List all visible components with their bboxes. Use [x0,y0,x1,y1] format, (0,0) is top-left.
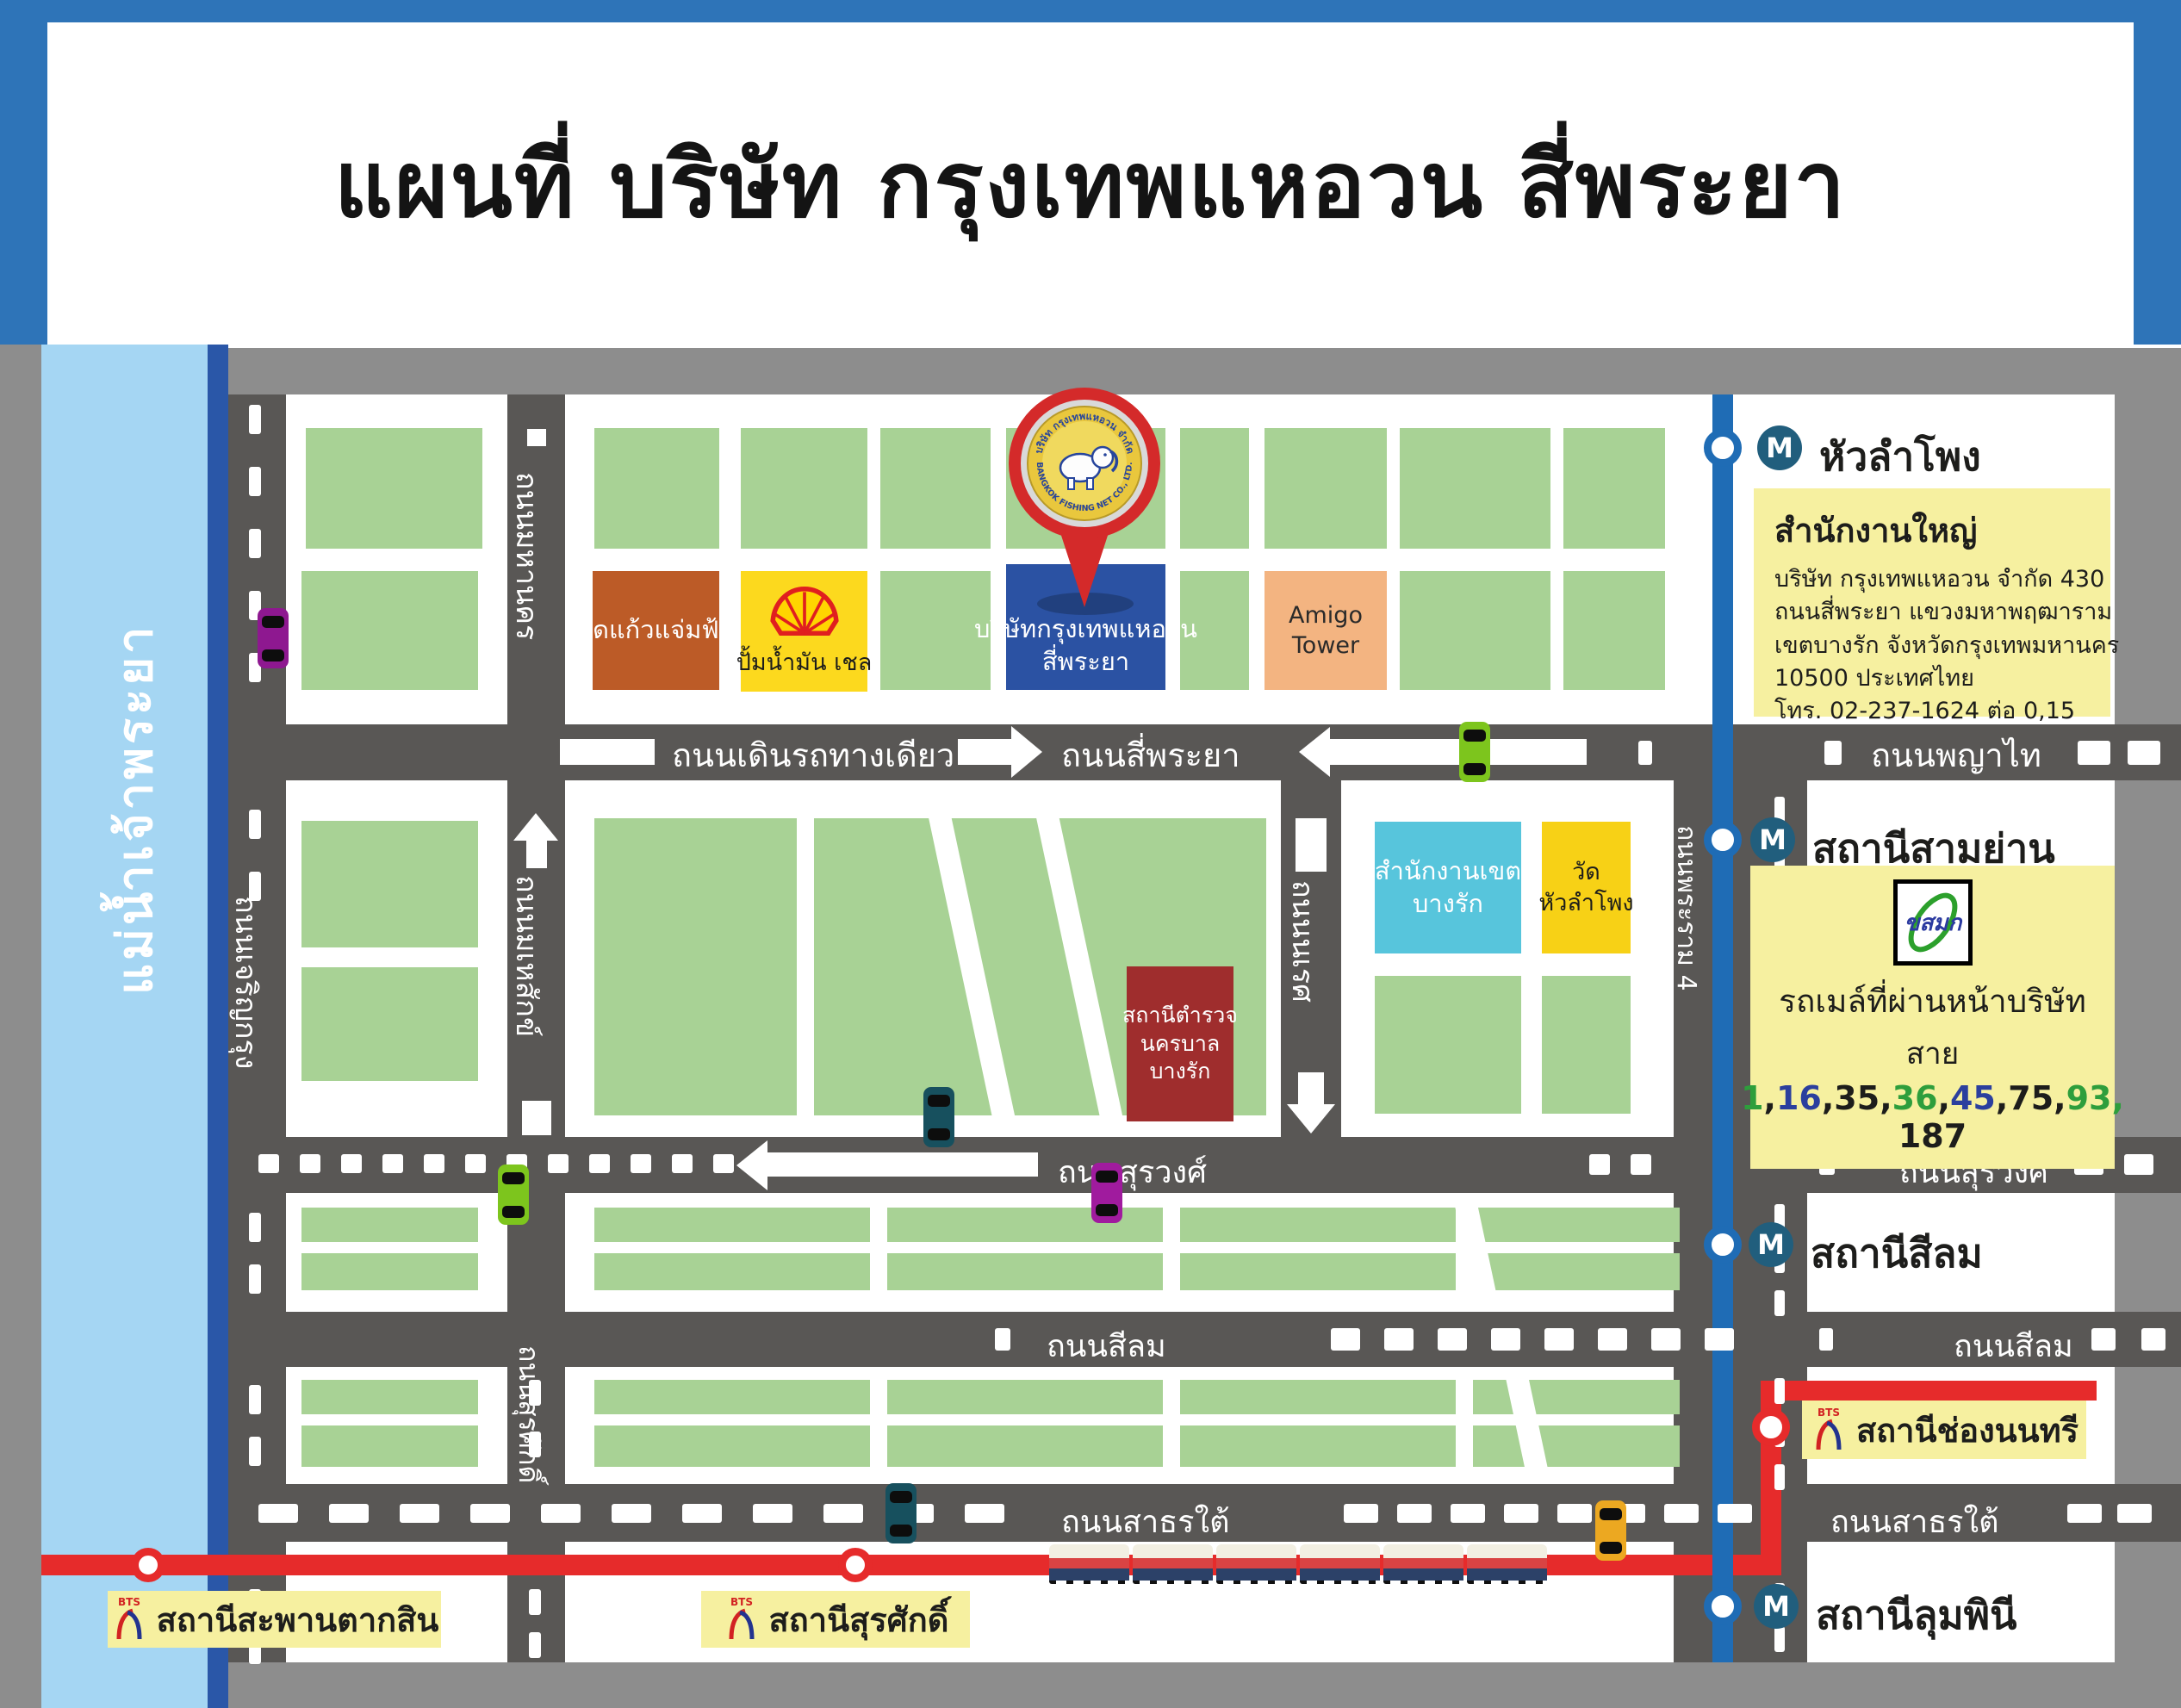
road-dash [249,1264,261,1294]
city-block [594,428,719,549]
city-block [741,428,867,549]
arrow-right-icon [958,739,1011,765]
arrow-down-icon [1287,1104,1335,1133]
city-block [1180,1253,1456,1290]
road-bar [1296,818,1327,872]
city-block [1180,428,1249,549]
train-car [1049,1544,1129,1584]
city-block [301,821,478,947]
building-label: สถานีตำรวจ [1122,1002,1238,1030]
road-dash [1651,1328,1681,1351]
road-label-one-way: ถนนเดินรถทางเดียว [672,729,954,781]
city-block [301,1253,478,1290]
bus-box-heading: รถเมล์ที่ผ่านหน้าบริษัท [1779,976,2086,1027]
road-label-silom-east: ถนนสีลม [1954,1321,2073,1370]
road-dash [631,1154,651,1173]
road-dash [823,1504,863,1523]
road-dash [529,1589,541,1615]
map-border-left [0,345,41,1708]
road-dash [548,1154,569,1173]
road-dash [300,1154,320,1173]
bus-route-numbers: 1,16,35,36,45,75,93, [1741,1079,2124,1117]
road-label-rama4: ถนนพระราม 4 [1666,825,1706,991]
bts-label-taksin: BTS สถานีสะพานตากสิน [108,1591,441,1648]
building-label: บริษัทกรุงเทพแหอวน [974,613,1197,646]
road-dash [1718,1504,1752,1523]
road-dash [465,1154,486,1173]
building-wat-hua-lamphong: วัด หัวลำโพง [1542,822,1631,953]
company-logo: บริษัท กรุงเทพแหอวน จำกัด BANGKOK FISHIN… [1027,406,1142,521]
road-dash [2128,741,2160,765]
head-office-info-box: สำนักงานใหญ่ บริษัท กรุงเทพแหอวน จำกัด 4… [1754,488,2110,717]
road-dash [1331,1328,1360,1351]
bus-route-number: 1 [1741,1079,1763,1117]
road-dash [589,1154,610,1173]
building-label: Amigo [1289,600,1363,630]
arrow-left-icon [1299,727,1330,777]
road-dash [1774,1290,1785,1316]
city-block [1375,976,1521,1114]
bts-label-surasak: BTS สถานีสุรศักดิ์ [701,1591,970,1648]
bus-route-number: 93 [2066,1079,2112,1117]
train-car [1133,1544,1213,1584]
mrt-logo-icon: M [1757,425,1802,470]
road-dash [1664,1504,1699,1523]
building-bang-rak-police-station: สถานีตำรวจ นครบาล บางรัก [1127,966,1233,1121]
mrt-logo-icon: M [1754,1584,1799,1629]
city-block [1473,1253,1680,1290]
road-dash [258,1154,279,1173]
title-box: แผนที่ บริษัท กรุงเทพแหอวน สี่พระยา [47,22,2134,345]
office-line: โทร. 02-237-1624 ต่อ 0,15 [1774,695,2090,728]
city-block [1563,571,1665,690]
city-block [301,1380,478,1414]
city-block [301,571,478,690]
city-block [887,1380,1163,1414]
mrt-label-hua-lamphong: หัวลำโพง [1819,425,1981,488]
city-block [1473,1380,1680,1414]
office-line: 10500 ประเทศไทย [1774,662,2090,695]
road-dash [1774,1378,1785,1404]
bus-route-number: 36 [1892,1079,1938,1117]
road-dash [1384,1328,1414,1351]
building-label: วัดแก้วแจ่มฟ้า [579,614,733,647]
road-dash [400,1504,439,1523]
building-label: วัด [1572,857,1600,887]
road-dash [2078,741,2110,765]
mrt-station-marker-lumpini [1704,1587,1742,1625]
road-dash [249,810,261,839]
city-block [594,1208,870,1242]
city-block [1264,428,1387,549]
road-label-surasak: ถนนสุรศักดิ์ [506,1345,550,1483]
road-label-surawong-west: ถนนสุรวงศ์ [1058,1147,1207,1196]
bmta-logo: ขสมก [1893,879,1973,966]
page-title: แผนที่ บริษัท กรุงเทพแหอวน สี่พระยา [334,111,1847,257]
city-block [301,967,478,1081]
office-line: บริษัท กรุงเทพแหอวน จำกัด 430 [1774,563,2090,596]
road-label-maha-nakhon: ถนนมหานคร [504,472,550,640]
road-dash [249,467,261,496]
road-dash [424,1154,444,1173]
building-label: สี่พระยา [1042,646,1129,679]
city-block [887,1253,1163,1290]
road-dash [329,1504,369,1523]
building-label: หัวลำโพง [1538,888,1633,918]
svg-text:BTS: BTS [730,1596,753,1608]
road-dash [249,1213,261,1242]
bts-logo-icon: BTS [1810,1407,1848,1453]
arrow-left-icon [766,1152,1038,1177]
bts-label-chong-nonsi: BTS สถานีช่องนนทรี [1802,1401,2086,1459]
road-dash [2067,1504,2102,1523]
map-border-right [2115,394,2181,1662]
road-label-phaya-thai: ถนนพญาไท [1871,729,2041,781]
train-car [1216,1544,1296,1584]
city-block [1542,976,1631,1114]
bts-train [1049,1544,1547,1584]
road-dash [1824,741,1842,765]
road-label-sathorn-east: ถนนสาธรใต้ [1830,1497,1998,1546]
header-band: แผนที่ บริษัท กรุงเทพแหอวน สี่พระยา [0,0,2181,345]
arrow-up-icon [526,841,547,868]
road-dash [995,1328,1010,1351]
car [885,1483,917,1543]
mrt-station-marker-silom [1704,1226,1742,1264]
bts-station-marker-chong-nonsi [1752,1408,1790,1446]
road-label-sathorn-west: ถนนสาธรใต้ [1061,1497,1229,1546]
city-block [594,1425,870,1467]
building-amigo-tower: Amigo Tower [1264,571,1387,690]
train-car [1300,1544,1380,1584]
bus-route-number: 16 [1776,1079,1822,1117]
bts-logo-icon: BTS [110,1596,148,1643]
office-title: สำนักงานใหญ่ [1774,504,2090,556]
building-label: ปั้มน้ำมัน เชล [736,648,873,678]
bts-station-marker-surasak [838,1548,873,1582]
bus-route-number: 187 [1898,1117,1967,1155]
river [41,345,208,1708]
road-label-naret: ถนนนเรศ [1280,880,1327,1003]
mrt-label-lumpini: สถานีลุมพินี [1816,1584,2016,1647]
train-car [1467,1544,1547,1584]
city-block [880,428,991,549]
city-block [887,1425,1163,1467]
arrow-left-icon [1328,739,1587,765]
bus-box-sub: สาย [1906,1030,1960,1078]
city-block [594,1253,870,1290]
building-wat-kaew-chaem-fa: วัดแก้วแจ่มฟ้า [593,571,719,690]
road-dash [249,405,261,434]
road-dash [1598,1328,1627,1351]
road-dash [341,1154,362,1173]
road-dash [1544,1328,1574,1351]
road-dash [682,1504,722,1523]
road-dash [2141,1328,2165,1351]
arrow-down-icon [1298,1072,1324,1105]
bts-logo-icon: BTS [723,1596,761,1643]
city-block [1180,1425,1456,1467]
mrt-blue-line [1712,394,1733,1662]
road-dash [1774,1464,1785,1490]
city-block [1473,1208,1680,1242]
building-label: สำนักงานเขต [1375,855,1521,888]
road-dash [2091,1328,2116,1351]
arrow-right-icon [1011,726,1042,778]
mrt-label-silom: สถานีสีลม [1811,1222,1983,1285]
building-label: บางรัก [1413,888,1483,921]
city-block [1473,1425,1680,1467]
road-bar [522,1101,551,1135]
car [498,1165,529,1225]
bus-route-number: 35 [1834,1079,1880,1117]
city-block [306,428,482,549]
road-dash [1638,741,1652,765]
road-dash [1491,1328,1520,1351]
road-dash [1504,1504,1538,1523]
map-border-top [228,348,2181,394]
car [1459,722,1490,782]
road-dash [382,1154,403,1173]
road-dash [1397,1504,1432,1523]
road-dash [1819,1328,1833,1351]
car [923,1087,954,1147]
building-label: Tower [1292,630,1359,661]
city-block [301,1208,478,1242]
arrow-up-icon [513,813,558,841]
car [1091,1163,1122,1223]
road-label-si-phraya: ถนนสี่พระยา [1061,729,1240,781]
city-block [301,1425,478,1467]
road-dash [529,1632,541,1658]
map-border-bottom [228,1662,2181,1708]
road-dash [753,1504,792,1523]
city-block [1400,571,1550,690]
car [1595,1500,1626,1561]
road-dash [541,1504,581,1523]
bts-line-upper [1761,1381,2097,1401]
mrt-station-marker-sam-yan [1704,821,1742,859]
building-bang-rak-district-office: สำนักงานเขต บางรัก [1375,822,1521,953]
bts-station-marker-taksin [131,1548,165,1582]
building-label: บางรัก [1150,1058,1211,1086]
road-dash [2117,1504,2152,1523]
mrt-station-marker-hua-lamphong [1704,429,1742,467]
svg-text:ขสมก: ขสมก [1904,910,1963,936]
mrt-logo-icon: M [1750,817,1795,862]
bus-info-box: ขสมก รถเมล์ที่ผ่านหน้าบริษัท สาย 1,16,35… [1750,866,2115,1169]
office-line: เขตบางรัก จังหวัดกรุงเทพมหานคร [1774,630,2090,662]
road-dash [249,1437,261,1466]
road-dash [527,429,546,446]
road-label-silom-west: ถนนสีลม [1047,1321,1166,1370]
city-block [1563,428,1665,549]
road-dash [258,1504,298,1523]
city-block [594,818,797,1115]
road-dash [249,1385,261,1414]
road-dash [1438,1328,1467,1351]
svg-text:BTS: BTS [1817,1407,1840,1419]
car [258,608,289,668]
road-dash [1451,1504,1485,1523]
bus-route-number: 75 [2008,1079,2054,1117]
road-dash [713,1154,734,1173]
road-dash [1774,1626,1785,1652]
road-label-mahesak: ถนนมเหสักข์ [504,875,550,1037]
road-dash [1631,1154,1651,1175]
road-dash [249,529,261,558]
train-car [1383,1544,1463,1584]
road-dash [1557,1504,1592,1523]
road-dash [965,1504,1004,1523]
shell-logo-icon [765,584,844,648]
building-shell-station: ปั้มน้ำมัน เชล [741,571,867,692]
building-label: นครบาล [1140,1030,1220,1059]
road-dash [672,1154,693,1173]
city-block [1180,1208,1456,1242]
road-bar [560,739,655,765]
bus-route-number: 45 [1950,1079,1996,1117]
map-poster: แผนที่ บริษัท กรุงเทพแหอวน สี่พระยา แม่น… [0,0,2181,1708]
office-line: ถนนสี่พระยา แขวงมหาพฤฒาราม [1774,596,2090,629]
road-label-charoen-krung: ถนนเจริญกรุง [223,896,270,1069]
road-dash [1589,1154,1610,1175]
road-dash [1705,1328,1734,1351]
road-dash [470,1504,510,1523]
arrow-left-icon [736,1140,767,1190]
road-dash [612,1504,651,1523]
river-label: แม่น้ำเจ้าพระยา [96,624,173,995]
mrt-logo-icon: M [1749,1222,1793,1267]
road-dash [1344,1504,1378,1523]
city-block [594,1380,870,1414]
city-block [1400,428,1550,549]
city-block [1180,1380,1456,1414]
svg-text:BTS: BTS [118,1596,140,1608]
road-dash [2124,1154,2153,1175]
